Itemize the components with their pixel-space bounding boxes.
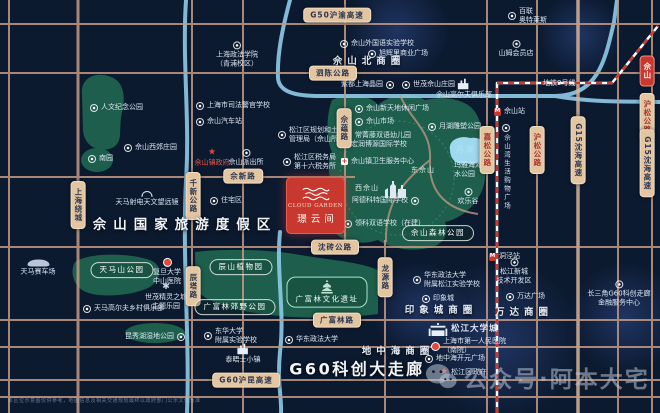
car-icon bbox=[27, 259, 49, 266]
poi-maya-beach-waterpark: 玛雅海滩水公园 bbox=[454, 161, 482, 179]
project-marker: CLOUD GARDEN 璟云间 bbox=[286, 177, 345, 234]
waves-icon bbox=[300, 187, 332, 201]
poi-yuehu-sculpture-park: 月湖雕塑公园 bbox=[428, 122, 481, 131]
circle-icon bbox=[512, 40, 520, 48]
circle-icon bbox=[422, 295, 430, 303]
poi-sheshan-foreign-language-school: 佘山外国语实验学校 bbox=[340, 39, 414, 48]
poi-donghua-univ-school: 东华大学附属实验学校 bbox=[204, 327, 257, 345]
circle-icon bbox=[506, 293, 514, 301]
circle-icon bbox=[355, 105, 363, 113]
poi-songjiang-newcity-tech-zone: 松江新城技术开发区 bbox=[497, 258, 532, 285]
badge-g15-shenhai-expwy: G15沈海高速 bbox=[571, 116, 586, 184]
circle-icon bbox=[508, 12, 516, 20]
poi-wanda-plaza: 万达广场 bbox=[506, 292, 545, 301]
badge-husong-road: 沪松公路 bbox=[530, 126, 545, 174]
cross-icon: + bbox=[341, 158, 348, 165]
badge-shexin-road: 佘新路 bbox=[223, 169, 263, 184]
badge-qianxin-road: 千新公路 bbox=[186, 172, 201, 220]
poi-sheshanwan-mall: 佘山湾生活购物广场 bbox=[502, 124, 510, 211]
project-name-en: CLOUD GARDEN bbox=[288, 203, 343, 209]
badge-g15-shenhai-expwy-east: G15沈海高速 bbox=[640, 129, 655, 197]
circle-icon bbox=[413, 276, 421, 284]
circle-yinxiangcheng: 印象城商圈 bbox=[405, 305, 478, 317]
metro-line9-label: 地铁9号线 bbox=[543, 79, 575, 88]
poi-sheshan-police-station: 佘山派出所 bbox=[229, 149, 264, 167]
circle-wanda: 万达商圈 bbox=[495, 307, 553, 319]
circle-icon bbox=[210, 197, 218, 205]
circle-icon bbox=[386, 81, 394, 89]
poi-songjiang-university-town: 松江大学城 bbox=[428, 323, 499, 336]
poi-ecupl-songjiang-school: 华东政法大学附属松江实验学校 bbox=[413, 271, 480, 289]
poi-thames-town: 泰晤士小镇 bbox=[226, 343, 261, 364]
circle-icon bbox=[340, 40, 348, 48]
badge-sheyun-road: 佘蕴路 bbox=[337, 108, 352, 148]
metro-icon: M bbox=[489, 253, 496, 261]
poi-sheshan-xintiandi-plaza: 佘山新天地休闲广场 bbox=[355, 104, 429, 113]
poi-nanyuan: 南园 bbox=[88, 154, 113, 163]
badge-jiasong-road: 嘉松公路 bbox=[480, 126, 495, 174]
poi-adcote-school: 阿德科特国际学校 bbox=[352, 196, 419, 205]
dish-icon bbox=[142, 191, 153, 197]
poi-judicial-police-school: 上海市司法警官学校 bbox=[196, 101, 270, 110]
poi-sheshan-market: 佘山市场 bbox=[355, 117, 394, 126]
circle-icon bbox=[196, 118, 204, 126]
badge-shenzhuan-road: 沈砖公路 bbox=[311, 240, 359, 255]
title-g60-corridor: G60科创大走廊 bbox=[289, 360, 424, 381]
pagoda-icon bbox=[320, 280, 335, 294]
park-badge-sheshan-forest: 佘山森林公园 bbox=[402, 225, 474, 241]
circle-icon bbox=[344, 220, 352, 228]
building-icon bbox=[457, 78, 471, 89]
poi-tax-office-16: 松江区税务局第十六税务所 bbox=[283, 153, 336, 171]
poi-g60-finance-center: 长三角G60科创走廊金融服务中心 bbox=[587, 280, 650, 307]
poi-sheshan-bus-station: 佘山汽车站 bbox=[196, 117, 242, 126]
poi-planning-land-bureau: 松江区规划和土地管理局（佘山所） bbox=[278, 126, 345, 144]
badge-guangfulin-road: 广富林路 bbox=[313, 313, 361, 328]
label-east-sheshan: 东佘山 bbox=[411, 166, 435, 175]
title-sheshan-resort: 佘山国家旅游度假区 bbox=[93, 217, 278, 235]
gate-icon bbox=[428, 323, 448, 336]
poi-changjingteng-kindergarten: 常菁藤双语幼儿园 bbox=[355, 131, 411, 140]
badge-longyuan-road: 龙源路 bbox=[378, 257, 393, 297]
sheshan-location-map: CLOUD GARDEN 璟云间 G50沪渝高速泗陈公路佘新路沈砖公路广富林路G… bbox=[0, 0, 660, 413]
poi-sheshan-town-gov: ★佘山镇政府 bbox=[195, 148, 230, 167]
circle-icon bbox=[428, 123, 436, 131]
circle-icon bbox=[615, 280, 623, 288]
circle-icon bbox=[402, 81, 410, 89]
badge-g50-huyu-expwy: G50沪渝高速 bbox=[303, 8, 371, 23]
poi-xuhuili-plaza: 旭辉里商业广场 bbox=[368, 49, 428, 58]
poi-sheshan-health-center: +佘山镇卫生服务中心 bbox=[341, 157, 414, 166]
park-badge-guangfulin-relics: 广富林文化遗址 bbox=[287, 277, 368, 308]
circle-icon bbox=[83, 305, 91, 313]
badge-g60-hukun-expwy: G60沪昆高速 bbox=[212, 373, 280, 388]
poi-sheshan-xijiao-manor: 佘山西郊庄园 bbox=[124, 143, 177, 152]
circle-icon bbox=[278, 131, 286, 139]
circle-icon bbox=[177, 333, 185, 341]
circle-icon bbox=[285, 336, 293, 344]
gear-icon: ✱ bbox=[162, 283, 170, 292]
poi-happy-valley: 欢乐谷 bbox=[458, 188, 479, 206]
label-yuehu-lake: 月湖 bbox=[456, 145, 476, 155]
poi-residential-area: 住宅区 bbox=[210, 196, 242, 205]
circle-icon bbox=[90, 104, 98, 112]
park-badge-guangfulin-country: 广富林郊野公园 bbox=[195, 299, 276, 315]
poi-international-school: 宏润博源国际学校 bbox=[351, 140, 407, 149]
circle-icon bbox=[368, 50, 376, 58]
building-icon bbox=[236, 343, 250, 354]
poi-sheshan-golf-club: 佘山高尔夫俱乐部 bbox=[436, 78, 492, 99]
project-name-cn: 璟云间 bbox=[297, 211, 338, 225]
poi-zidu-shanghai-jingyuan: 紫都上海晶园 bbox=[341, 80, 394, 89]
poi-ecupl: 华东政法大学 bbox=[285, 335, 338, 344]
circle-icon bbox=[510, 258, 518, 266]
poi-bailian-outlets: 百联奥特莱斯 bbox=[508, 7, 547, 25]
circle-icon bbox=[355, 118, 363, 126]
pin-icon bbox=[431, 342, 440, 351]
circle-icon bbox=[283, 158, 291, 166]
poi-tianma-golf-club: 天马高尔夫乡村俱乐部 bbox=[83, 304, 164, 313]
circle-icon bbox=[233, 41, 241, 49]
park-badge-chenshan-botanical: 辰山植物园 bbox=[210, 259, 273, 275]
poi-tianma-radio-telescope: 天马射电天文望远镜 bbox=[116, 191, 179, 207]
circle-icon bbox=[464, 188, 472, 196]
poi-tianma-circuit: 天马赛车场 bbox=[21, 259, 56, 276]
circle-icon bbox=[411, 197, 419, 205]
badge-sheshan-red: 佘山 bbox=[640, 56, 655, 87]
disclaimer-text: 本区位示意图仅供参考，地图信息及相关交通规划最终以政府部门公示文件为准 bbox=[8, 397, 201, 404]
badge-shanghai-ring-expwy: 上海绕城 bbox=[71, 181, 86, 229]
circle-icon bbox=[88, 155, 96, 163]
badge-sichen-road: 泗陈公路 bbox=[309, 66, 357, 81]
pin-icon bbox=[163, 258, 172, 267]
poi-shanghai-univ-political-law: 上海政法学院（青浦校区） bbox=[216, 41, 258, 68]
metro-icon: M bbox=[494, 108, 501, 116]
station-sheshan: M佘山站 bbox=[494, 107, 525, 116]
circle-icon bbox=[242, 149, 250, 157]
park-badge-tianmashan: 天马山公园 bbox=[91, 262, 154, 278]
circle-dizhonghai: 地中海商圈 bbox=[362, 346, 435, 358]
poi-kunxiu-lake-wetland: 昆秀湖湿地公园 bbox=[125, 332, 185, 341]
poi-yinxiangcheng-mall: 印象城 bbox=[422, 294, 454, 303]
circle-icon bbox=[196, 102, 204, 110]
star-icon: ★ bbox=[208, 148, 216, 157]
watermark-text: 公众号·阿本大宅 bbox=[464, 360, 650, 394]
watermark: 公众号·阿本大宅 bbox=[424, 360, 650, 394]
wechat-icon bbox=[424, 363, 458, 391]
circle-icon bbox=[204, 332, 212, 340]
poi-renwen-memorial-park: 人文纪念公园 bbox=[90, 103, 143, 112]
poi-first-peoples-hospital: 上海市第一人民医院（南院） bbox=[431, 337, 506, 355]
poi-sams-club: 山姆会员店 bbox=[499, 40, 534, 58]
circle-icon bbox=[502, 124, 510, 132]
circle-icon bbox=[124, 144, 132, 152]
